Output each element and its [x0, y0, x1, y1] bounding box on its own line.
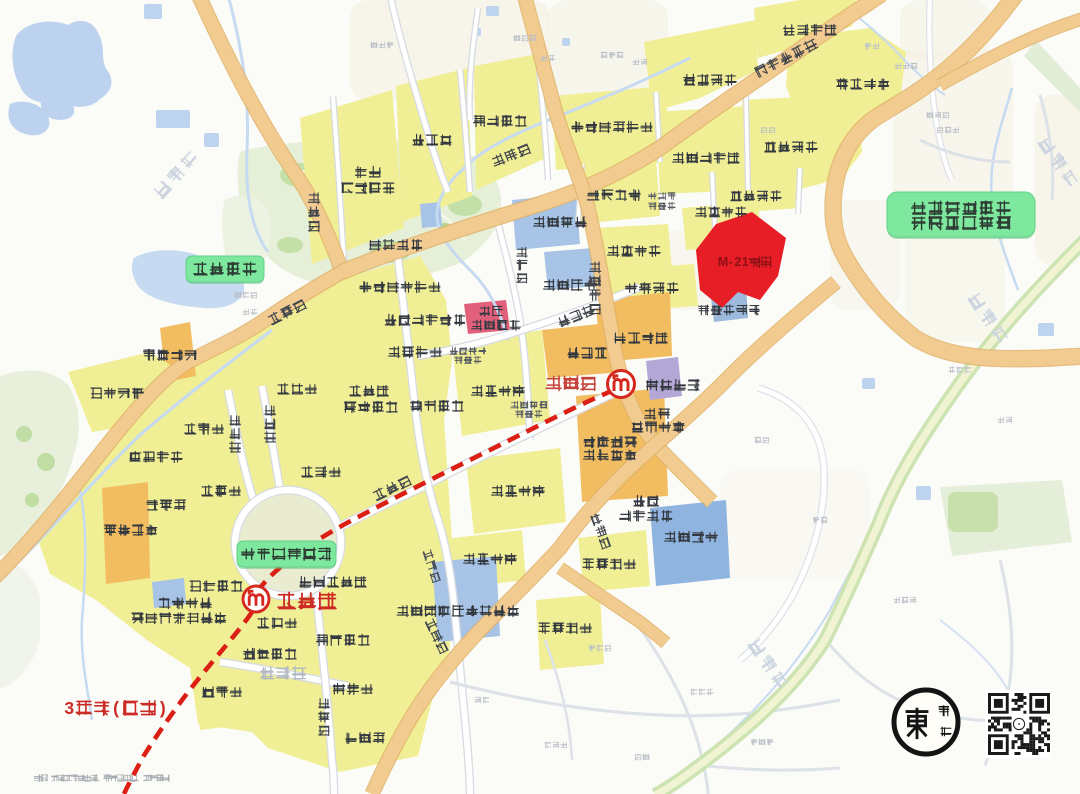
- svg-text:3: 3: [64, 698, 74, 718]
- svg-text:2: 2: [734, 255, 741, 269]
- svg-text:-: -: [728, 255, 732, 269]
- svg-text:1: 1: [742, 255, 749, 269]
- svg-text:(: (: [113, 698, 119, 718]
- svg-text:M: M: [718, 255, 728, 269]
- svg-text:): ): [160, 698, 166, 718]
